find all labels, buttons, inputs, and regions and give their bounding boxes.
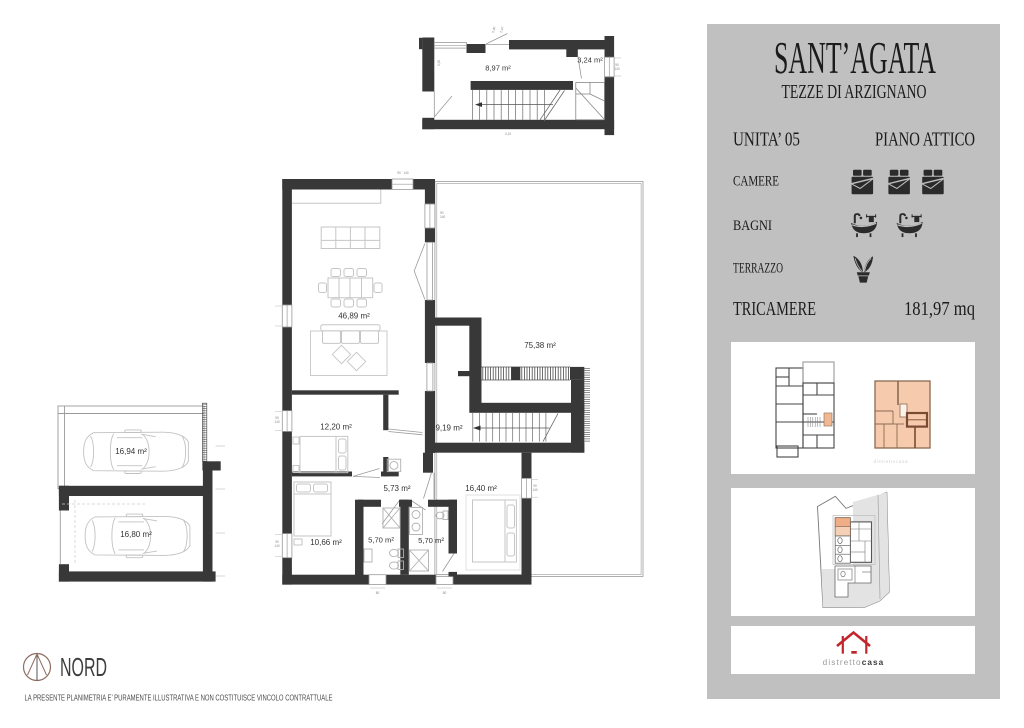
svg-text:0,10: 0,10 xyxy=(505,132,511,136)
svg-text:140: 140 xyxy=(532,488,538,492)
svg-text:80: 80 xyxy=(376,591,380,595)
svg-text:140: 140 xyxy=(274,544,280,548)
svg-text:5,70 m²: 5,70 m² xyxy=(418,536,444,545)
svg-text:9,19 m²: 9,19 m² xyxy=(435,424,462,433)
svg-text:140: 140 xyxy=(274,420,280,424)
svg-text:16,80 m²: 16,80 m² xyxy=(120,530,152,539)
svg-text:46,89 m²: 46,89 m² xyxy=(338,312,370,321)
svg-text:NORD: NORD xyxy=(60,652,107,682)
svg-text:0,90: 0,90 xyxy=(437,60,441,66)
svg-text:140: 140 xyxy=(403,171,409,175)
svg-text:BAGNI: BAGNI xyxy=(733,218,772,234)
svg-text:CAMERE: CAMERE xyxy=(733,174,779,190)
svg-text:TRICAMERE: TRICAMERE xyxy=(733,298,816,320)
svg-text:8,97 m²: 8,97 m² xyxy=(485,64,511,73)
svg-text:3,24 m²: 3,24 m² xyxy=(577,56,603,65)
svg-text:75,38 m²: 75,38 m² xyxy=(524,341,556,350)
svg-text:16,94 m²: 16,94 m² xyxy=(115,447,147,456)
svg-text:181,97 mq: 181,97 mq xyxy=(904,298,975,320)
svg-text:UNITA’ 05: UNITA’ 05 xyxy=(733,129,800,151)
svg-text:80: 80 xyxy=(443,591,447,595)
svg-text:5,73 m²: 5,73 m² xyxy=(383,484,410,493)
svg-text:SANT’AGATA: SANT’AGATA xyxy=(774,33,936,83)
svg-text:12,20 m²: 12,20 m² xyxy=(320,423,352,432)
svg-text:distrettocasa: distrettocasa xyxy=(823,658,885,667)
svg-text:140: 140 xyxy=(440,215,446,219)
svg-text:90: 90 xyxy=(397,171,401,175)
svg-text:PIANO ATTICO: PIANO ATTICO xyxy=(875,129,975,151)
svg-text:distrettocasa: distrettocasa xyxy=(874,459,909,464)
svg-text:10,66 m²: 10,66 m² xyxy=(310,538,342,547)
svg-text:5,70 m²: 5,70 m² xyxy=(368,536,394,545)
svg-text:TEZZE DI ARZIGNANO: TEZZE DI ARZIGNANO xyxy=(782,81,927,103)
svg-text:TERRAZZO: TERRAZZO xyxy=(733,261,783,277)
svg-text:140: 140 xyxy=(614,67,620,71)
svg-text:LA PRESENTE PLANIMETRIA E’ PUR: LA PRESENTE PLANIMETRIA E’ PURAMENTE ILL… xyxy=(25,693,333,703)
svg-text:16,40 m²: 16,40 m² xyxy=(465,484,497,493)
